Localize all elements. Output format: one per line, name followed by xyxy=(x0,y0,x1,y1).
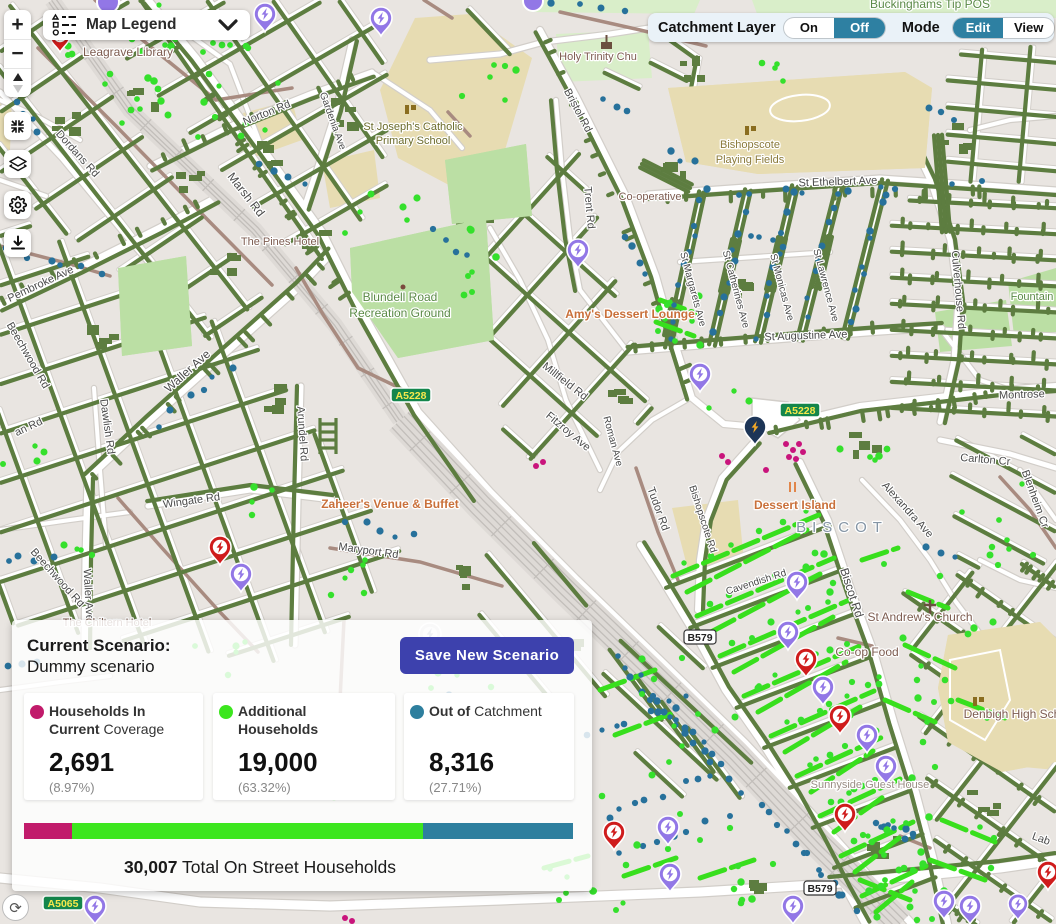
svg-text:Co-op Food: Co-op Food xyxy=(835,645,898,659)
svg-text:Zaheer's Venue & Buffet: Zaheer's Venue & Buffet xyxy=(321,497,459,511)
svg-text:Recreation Ground: Recreation Ground xyxy=(349,306,450,320)
svg-text:St Andrew's Church: St Andrew's Church xyxy=(867,610,972,624)
svg-text:BISCOT: BISCOT xyxy=(796,519,888,536)
svg-text:Sunnyside Guest House: Sunnyside Guest House xyxy=(811,779,930,791)
svg-text:The Pines Hotel: The Pines Hotel xyxy=(241,236,319,248)
svg-text:A5228: A5228 xyxy=(785,405,816,417)
svg-text:Bishopscote: Bishopscote xyxy=(720,139,780,151)
svg-text:Dessert Island: Dessert Island xyxy=(754,498,836,512)
svg-text:Playing Fields: Playing Fields xyxy=(716,154,785,166)
svg-text:Leagrave Library: Leagrave Library xyxy=(83,45,173,59)
svg-text:Montrose: Montrose xyxy=(999,388,1045,402)
svg-text:Denbigh High Sch: Denbigh High Sch xyxy=(964,707,1056,721)
svg-text:Primary School: Primary School xyxy=(376,135,451,147)
svg-text:B579: B579 xyxy=(687,632,712,644)
svg-text:A5228: A5228 xyxy=(396,390,427,402)
svg-text:Buckinghams Tip POS: Buckinghams Tip POS xyxy=(870,0,990,11)
svg-text:Fountain: Fountain xyxy=(1011,291,1054,303)
svg-text:St Joseph's Catholic: St Joseph's Catholic xyxy=(363,121,463,133)
svg-text:A5065: A5065 xyxy=(48,898,79,910)
svg-text:Blundell Road: Blundell Road xyxy=(363,290,438,304)
svg-text:Amy's Dessert Lounge: Amy's Dessert Lounge xyxy=(565,307,695,321)
svg-text:Holy Trinity Chu: Holy Trinity Chu xyxy=(559,51,637,63)
svg-text:Co-operative: Co-operative xyxy=(619,191,682,203)
svg-text:B579: B579 xyxy=(807,883,832,895)
